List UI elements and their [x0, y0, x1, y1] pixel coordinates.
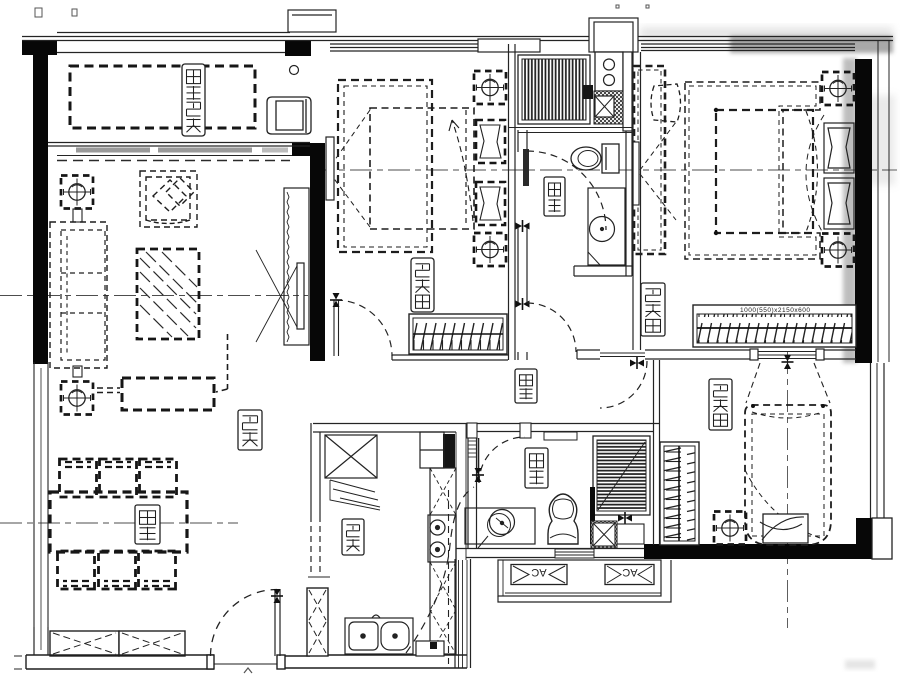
- svg-text:AC: AC: [531, 566, 546, 578]
- svg-text:AC: AC: [622, 566, 637, 578]
- svg-text:1000(550)x2150x600: 1000(550)x2150x600: [740, 307, 810, 314]
